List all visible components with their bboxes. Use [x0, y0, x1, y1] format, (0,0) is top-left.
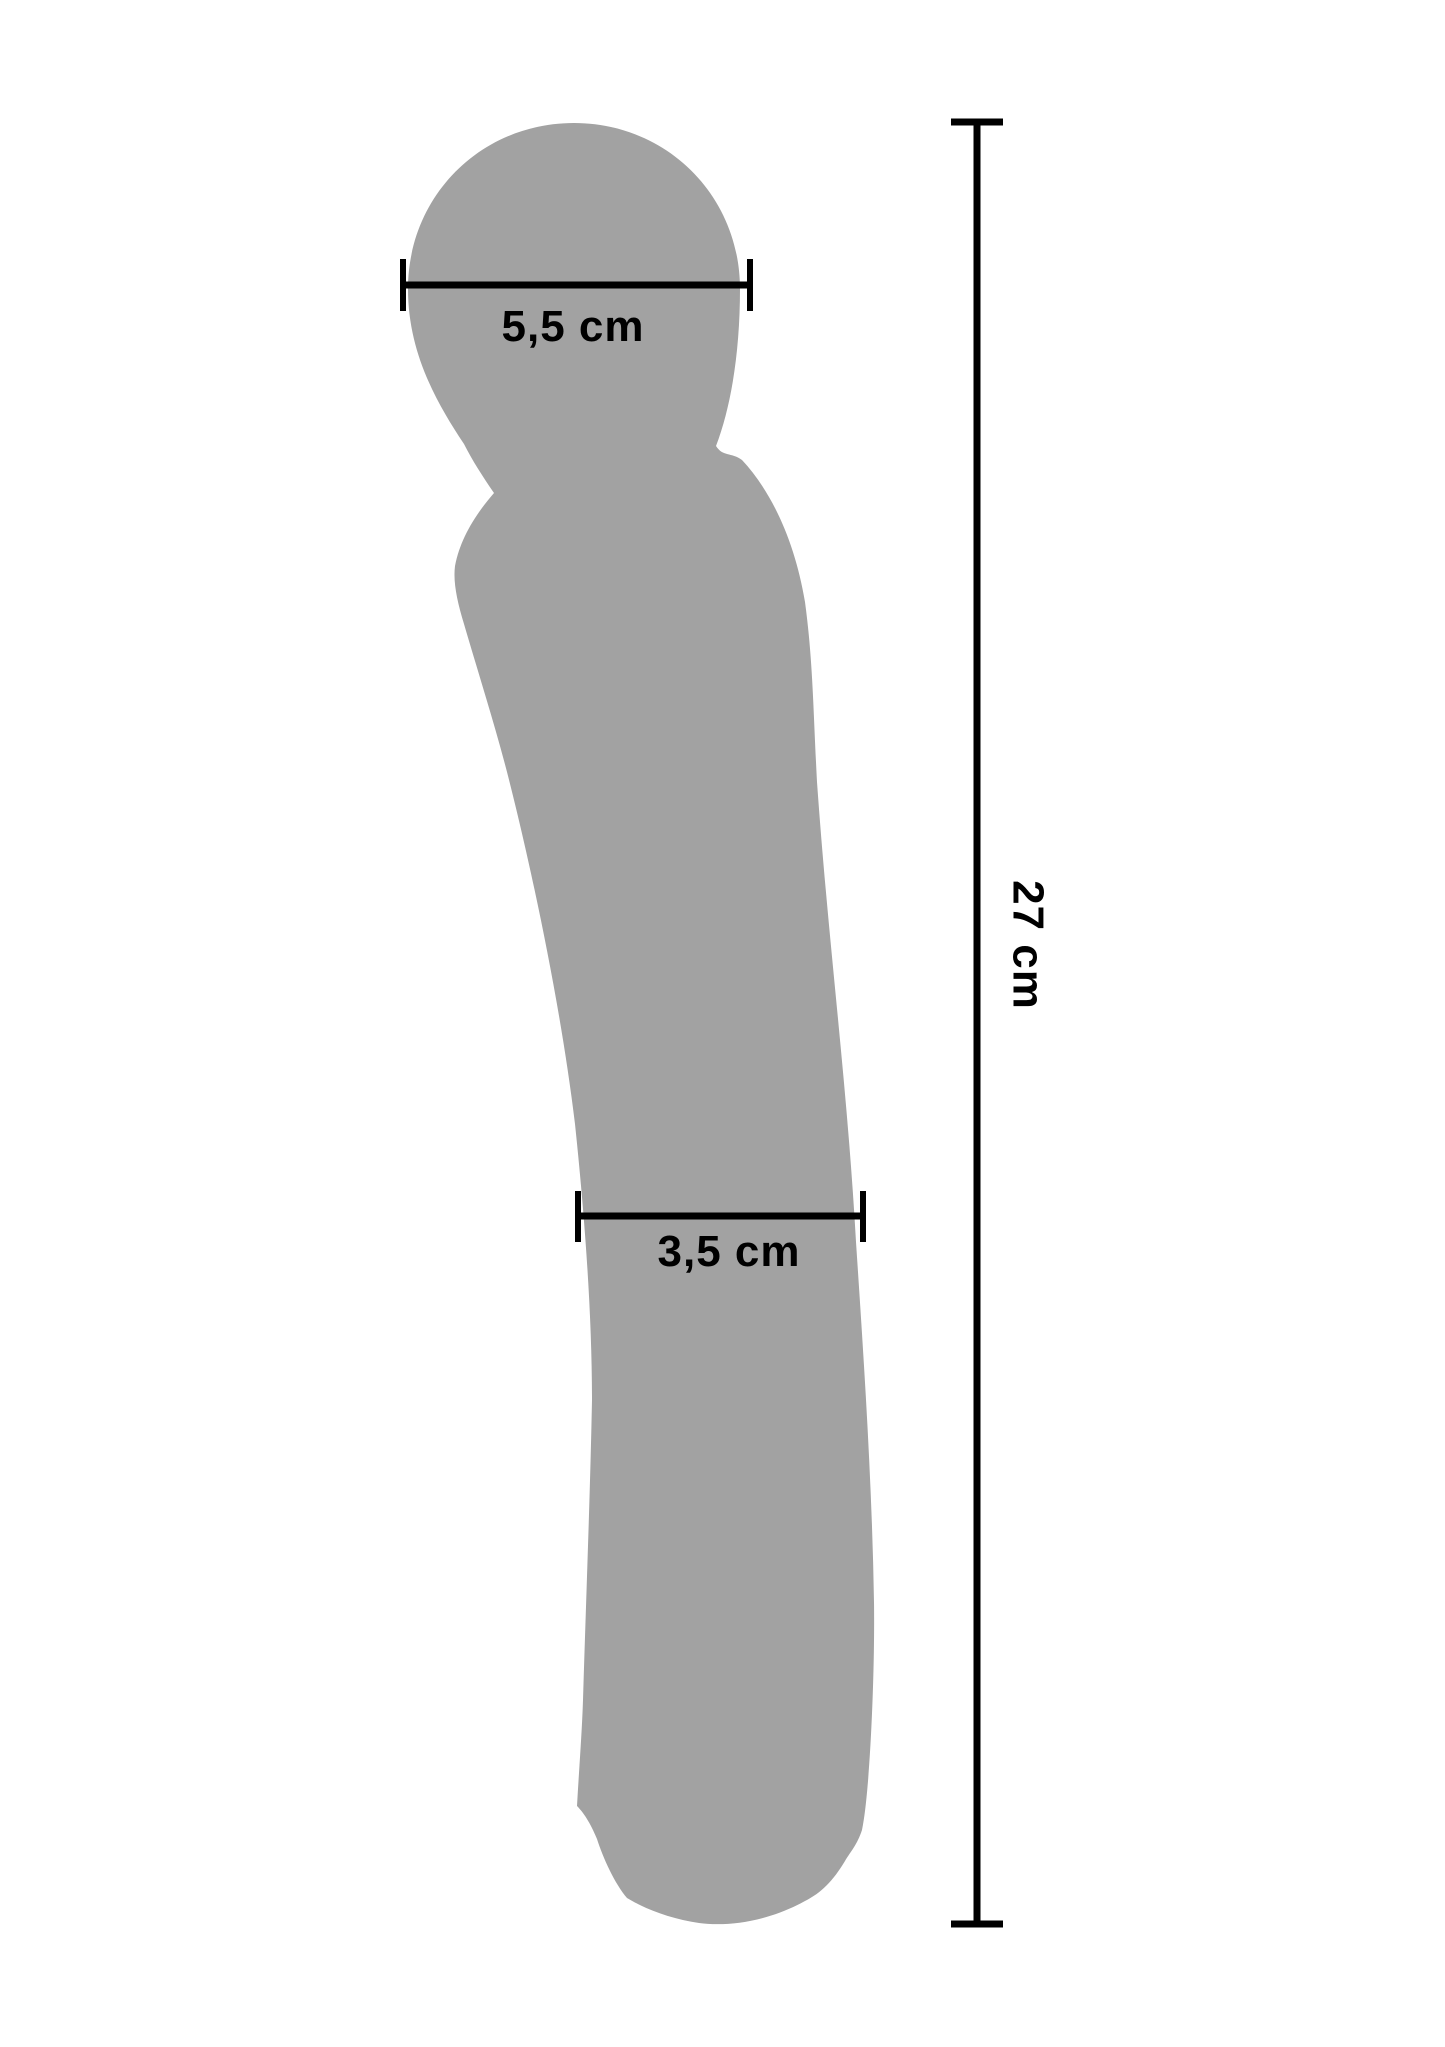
- head-diameter-label: 5,5 cm: [502, 302, 645, 351]
- total-length-label: 27 cm: [1004, 880, 1053, 1010]
- dimension-diagram-canvas: 5,5 cm 3,5 cm 27 cm: [0, 0, 1445, 2047]
- product-silhouette: [408, 123, 874, 1924]
- total-length-dimension: [951, 122, 1003, 1924]
- product-dimension-diagram: 5,5 cm 3,5 cm 27 cm: [0, 0, 1445, 2047]
- shaft-diameter-label: 3,5 cm: [658, 1227, 801, 1276]
